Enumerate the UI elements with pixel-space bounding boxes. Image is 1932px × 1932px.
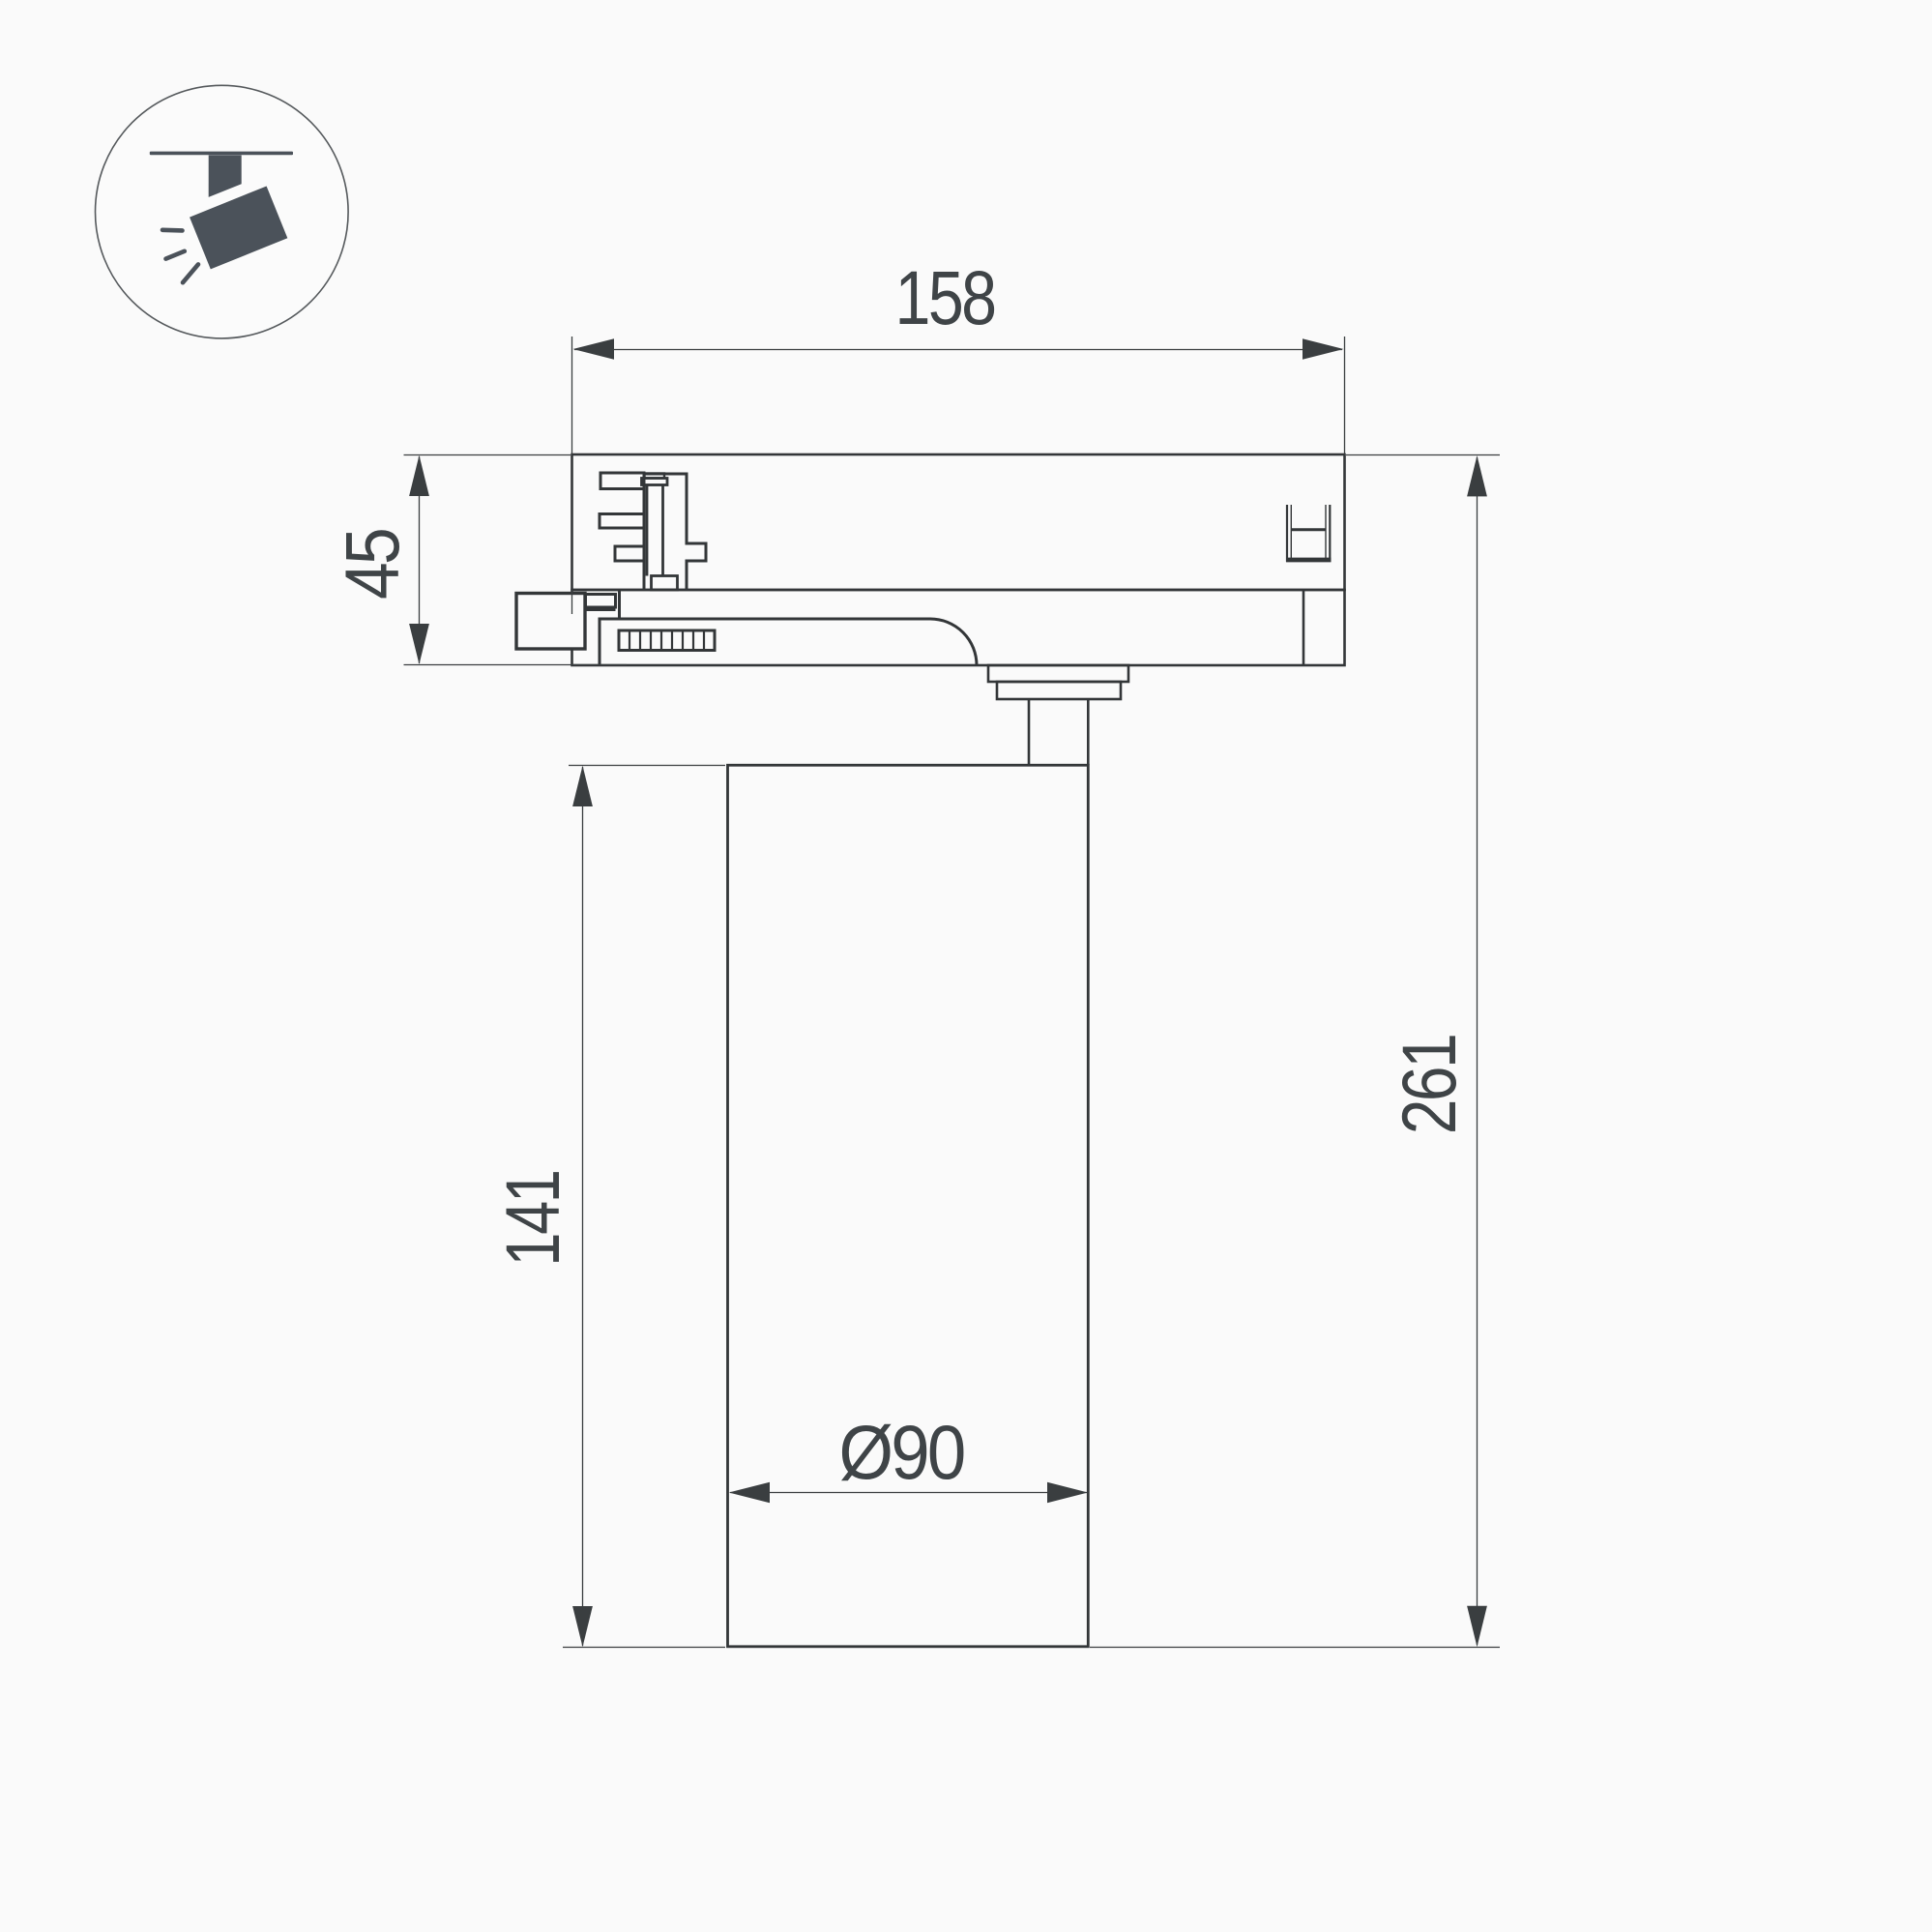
svg-text:141: 141 [490,1171,575,1266]
svg-text:Ø90: Ø90 [839,1411,965,1495]
svg-text:261: 261 [1388,1036,1473,1134]
svg-text:158: 158 [894,256,994,340]
svg-text:45: 45 [330,529,415,600]
